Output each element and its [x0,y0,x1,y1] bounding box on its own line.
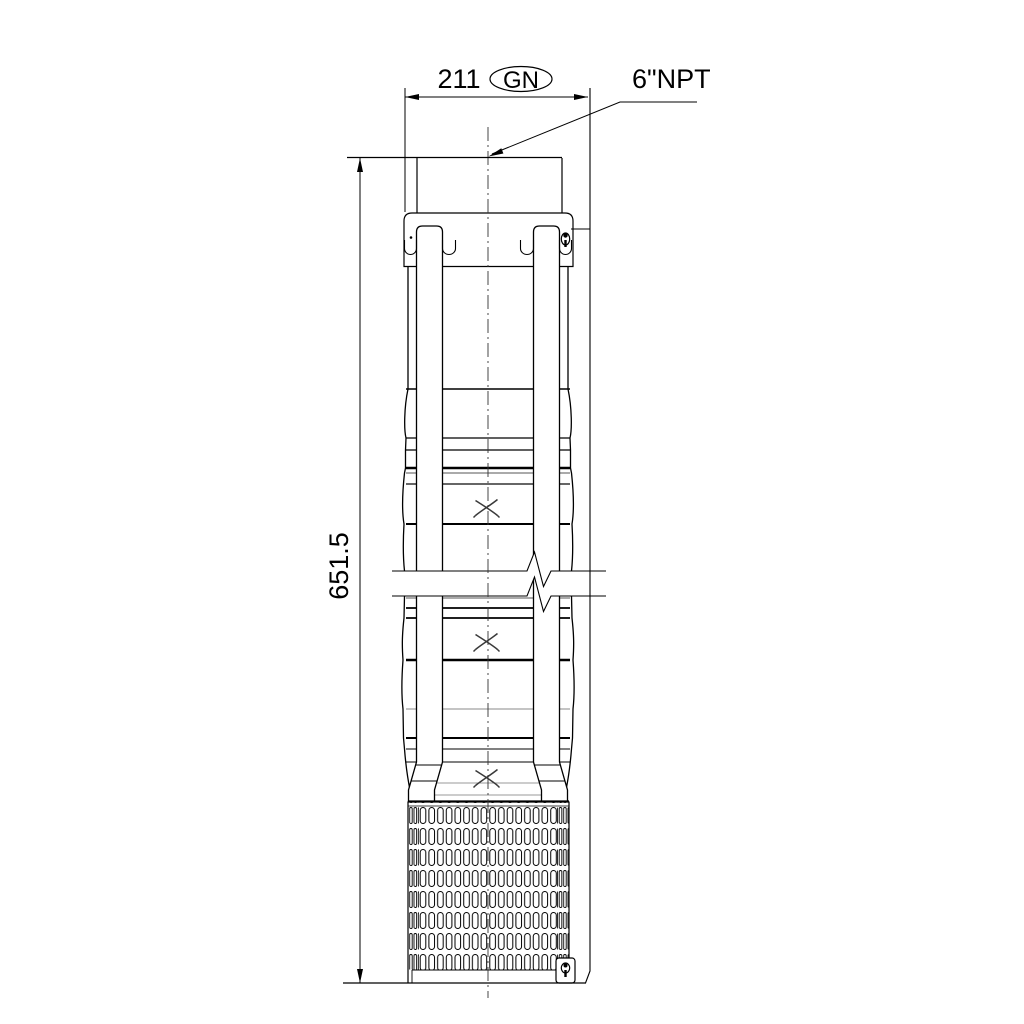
width-variant-label: GN [503,67,539,94]
npt-connection [417,158,562,213]
pump-technical-drawing: 211 GN 651.5 6"NPT [0,0,1024,1024]
strainer-screen-edge-right [557,803,569,970]
drain-plug-bottom [556,958,575,983]
arrowhead-right [574,94,588,100]
inlet-strainer [408,802,575,984]
cable-guard-outer-edge [586,88,591,983]
arrowhead-left [405,94,419,100]
left-side-profile [402,226,456,802]
bowl-profile-lower [402,596,410,802]
coupling-mark [474,634,500,652]
width-dimension-label: 211 [437,64,480,94]
head-left-dot [410,236,413,239]
coupling-mark [474,500,500,518]
bowl-profile-upper [403,267,408,572]
cable-guard-strap [534,226,568,802]
connection-label: 6"NPT [632,64,711,94]
bowl-profile-upper [568,267,573,572]
coupling-marks [474,500,500,788]
width-dimension [405,67,588,213]
coupling-mark [474,770,500,788]
height-dimension-label: 651.5 [324,532,354,600]
arrowhead-top [357,158,363,172]
leader-line [492,102,697,154]
npt-leader [489,102,698,157]
right-side-profile [521,226,575,802]
bowl-profile-lower [566,596,574,802]
pump-technical-drawing-page: 211 GN 651.5 6"NPT [0,0,1024,1024]
leader-arrowhead [489,148,504,156]
cable-guard-strap [409,226,443,802]
arrowhead-bottom [357,969,363,983]
strainer-screen-edge-left [409,803,419,970]
